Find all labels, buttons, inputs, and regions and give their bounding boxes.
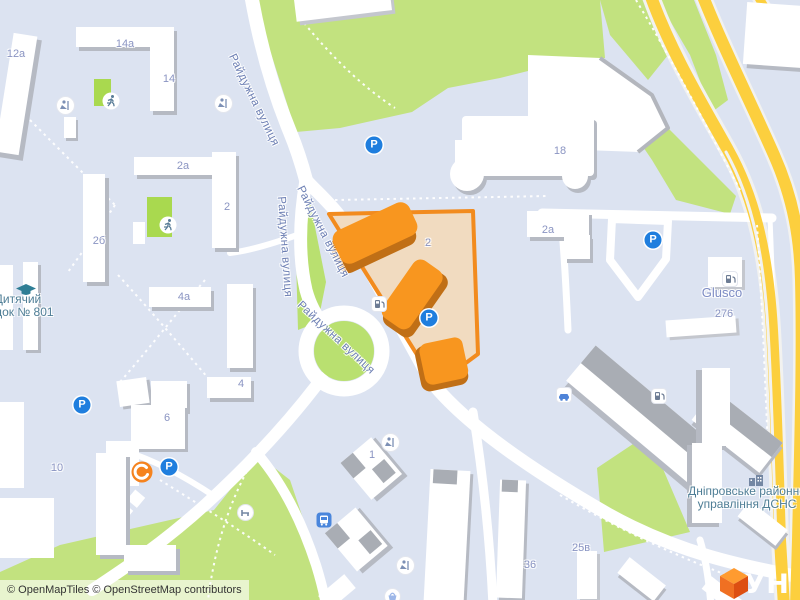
map-base-layer [0, 0, 800, 600]
lun-cube-icon [718, 566, 750, 600]
map-canvas[interactable]: PPPPP 12а14а142а22б4а461022а1827613625вР… [0, 0, 800, 600]
roundabout-island [314, 321, 374, 381]
attribution-text[interactable]: © OpenMapTiles © OpenStreetMap contribut… [7, 584, 242, 596]
map-attribution[interactable]: © OpenMapTiles © OpenStreetMap contribut… [0, 580, 249, 600]
map-provider-logo[interactable]: ЛУН [718, 566, 800, 600]
